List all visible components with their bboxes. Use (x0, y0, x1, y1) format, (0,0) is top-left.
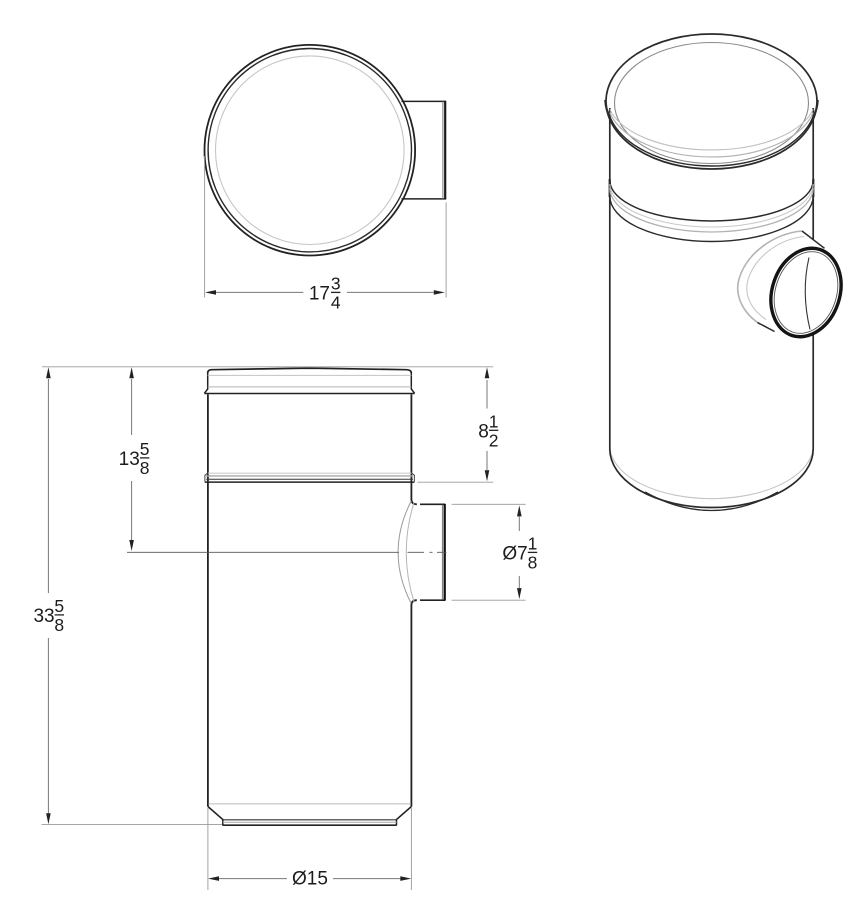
svg-text:5: 5 (54, 596, 64, 616)
svg-text:33: 33 (33, 606, 54, 627)
svg-text:2: 2 (489, 430, 499, 450)
svg-text:5: 5 (140, 439, 150, 459)
svg-text:8: 8 (528, 552, 538, 572)
svg-text:Ø7: Ø7 (502, 544, 527, 565)
svg-text:Ø15: Ø15 (292, 869, 328, 890)
svg-text:1: 1 (489, 411, 499, 431)
svg-text:4: 4 (331, 292, 341, 312)
svg-text:1: 1 (528, 533, 538, 553)
svg-text:3: 3 (331, 273, 341, 293)
svg-text:8: 8 (54, 615, 64, 635)
svg-text:8: 8 (140, 458, 150, 478)
svg-text:13: 13 (119, 449, 140, 470)
svg-text:17: 17 (309, 283, 330, 304)
svg-text:8: 8 (478, 422, 489, 443)
